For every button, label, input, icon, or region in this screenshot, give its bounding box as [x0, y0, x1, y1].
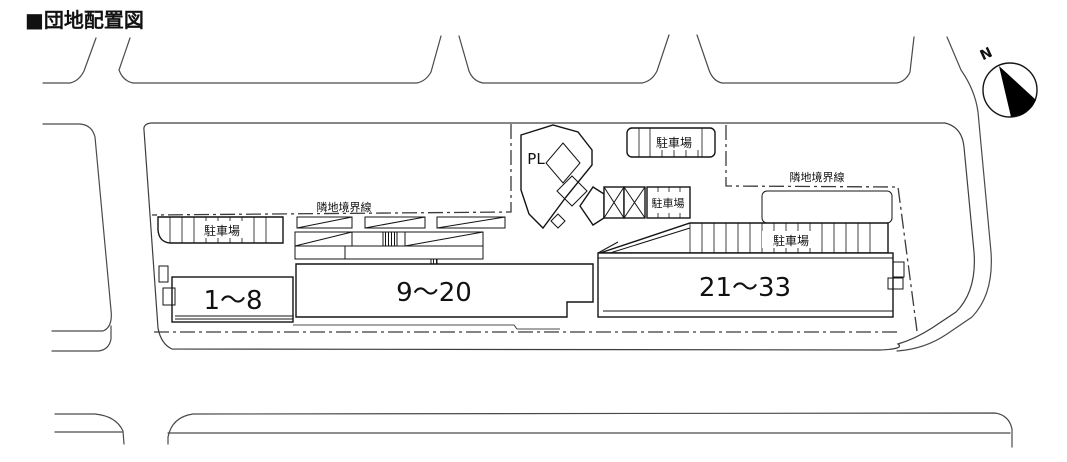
compass-north-label: N	[978, 45, 995, 64]
ramp-row-upper	[297, 217, 505, 228]
parking-left-label: 駐車場	[204, 223, 240, 238]
plaza-diamond-small	[551, 214, 565, 228]
access-deck	[295, 217, 505, 266]
boundary-label-west: 隣地境界線	[317, 200, 372, 214]
building-1-8-stairs-1	[159, 266, 168, 282]
ramp-row-lower	[295, 232, 483, 266]
parking-middle-label: 駐車場	[652, 196, 685, 210]
walkway-line	[293, 325, 560, 329]
parking-area-top: 駐車場	[627, 128, 715, 157]
parking-middle-chevron	[580, 187, 604, 225]
building-21-33-label: 21～33	[699, 273, 791, 303]
building-9-20: 9～20	[293, 264, 593, 329]
parking-right-outline	[600, 223, 888, 253]
parking-area-middle: 駐車場	[580, 187, 690, 225]
site-plan-page: ■団地配置図 隣地境界線 隣地境界線 駐車場	[0, 0, 1067, 462]
playground-label: PL	[527, 150, 545, 168]
playground-plaza: PL	[521, 125, 592, 228]
building-21-33: 21～33	[598, 242, 904, 317]
top-street-curb-4	[697, 35, 914, 83]
building-1-8-label: 1～8	[203, 286, 262, 316]
bottom-street-north-curb-left	[55, 414, 124, 444]
boundary-label-east: 隣地境界線	[790, 170, 845, 184]
plaza-outline	[521, 125, 592, 228]
building-9-20-label: 9～20	[396, 278, 472, 308]
top-street-curb-3	[459, 35, 669, 83]
building-1-8: 1～8	[159, 266, 293, 322]
bottom-street-north-curb-right	[168, 413, 1012, 447]
north-compass: N	[978, 45, 1037, 117]
site-plan-drawing: ■団地配置図 隣地境界線 隣地境界線 駐車場	[0, 0, 1067, 462]
parking-right-aisle	[762, 191, 892, 223]
stairs-block-center	[383, 232, 397, 246]
building-21-33-stairs-1	[893, 262, 904, 277]
left-street-corner-curb	[52, 326, 111, 351]
parking-top-label: 駐車場	[656, 135, 692, 150]
parking-area-left: 駐車場	[158, 217, 283, 243]
left-street-west-curb	[43, 124, 111, 331]
page-title: ■団地配置図	[25, 8, 144, 32]
top-street-curb-2	[119, 36, 441, 83]
right-street-outer-curb	[897, 37, 991, 351]
parking-right-label: 駐車場	[773, 233, 809, 248]
top-street-curb-1	[43, 38, 96, 83]
